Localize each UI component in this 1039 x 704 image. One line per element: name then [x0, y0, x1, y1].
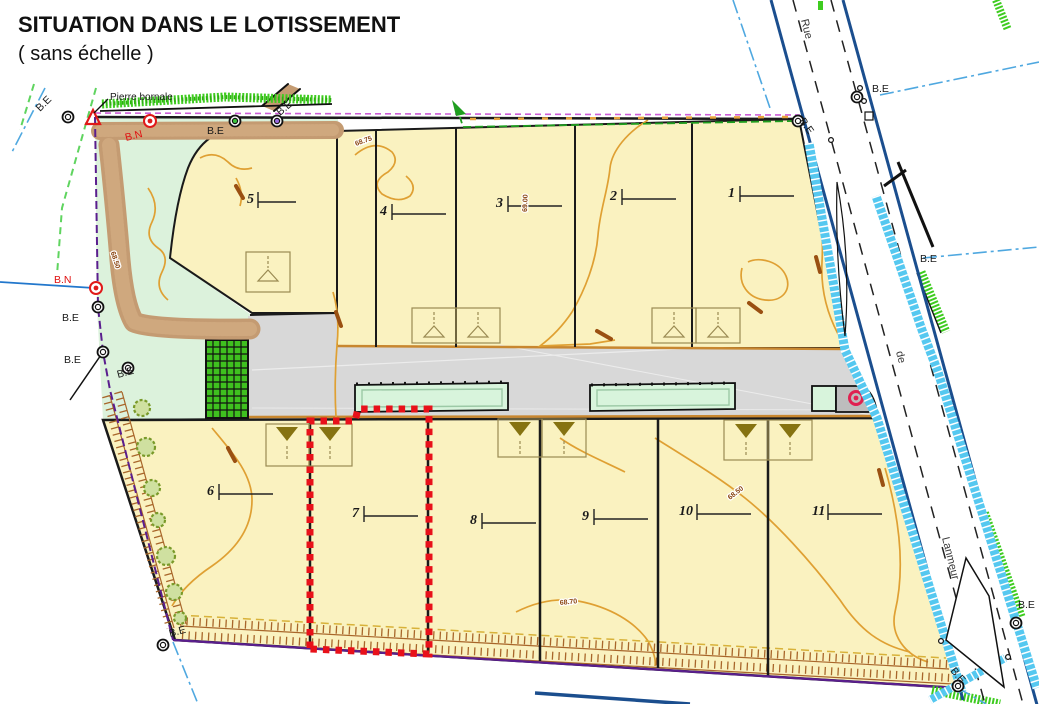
elevation-label: 69.00: [522, 194, 530, 212]
lot-number-2: 2: [609, 189, 617, 204]
lot-number-6: 6: [207, 484, 214, 499]
page-subtitle: ( sans échelle ): [18, 43, 154, 65]
lot-number-7: 7: [352, 506, 360, 521]
lot-number-8: 8: [470, 513, 477, 528]
subdivision-situation-plan: 1 2 3 4 5 6 7 8 9 10 11 68.75 69.00 68.5…: [0, 0, 1039, 704]
site-plan-svg: 1 2 3 4 5 6 7 8 9 10 11 68.75 69.00 68.5…: [0, 0, 1039, 704]
lot-number-9: 9: [582, 509, 589, 524]
pierre-bornale-label: Pierre bornale: [110, 92, 173, 103]
lot-number-5: 5: [247, 192, 254, 207]
bn-label: B.N: [54, 274, 72, 286]
planted-grid-area: [206, 340, 248, 418]
be-label: B.E: [207, 125, 224, 137]
be-label: B.E: [64, 354, 81, 366]
be-label: B.E: [62, 312, 79, 324]
lot-number-3: 3: [495, 196, 503, 211]
lot-number-11: 11: [812, 504, 825, 519]
lot-number-4: 4: [379, 204, 387, 219]
lot-number-1: 1: [728, 186, 735, 201]
kerb-line: [248, 416, 877, 417]
be-label: B.E: [872, 83, 889, 95]
lot-number-10: 10: [679, 504, 693, 519]
be-label: B.E: [920, 253, 937, 265]
page-title: SITUATION DANS LE LOTISSEMENT: [18, 12, 401, 37]
be-label: B.E: [1018, 599, 1035, 611]
